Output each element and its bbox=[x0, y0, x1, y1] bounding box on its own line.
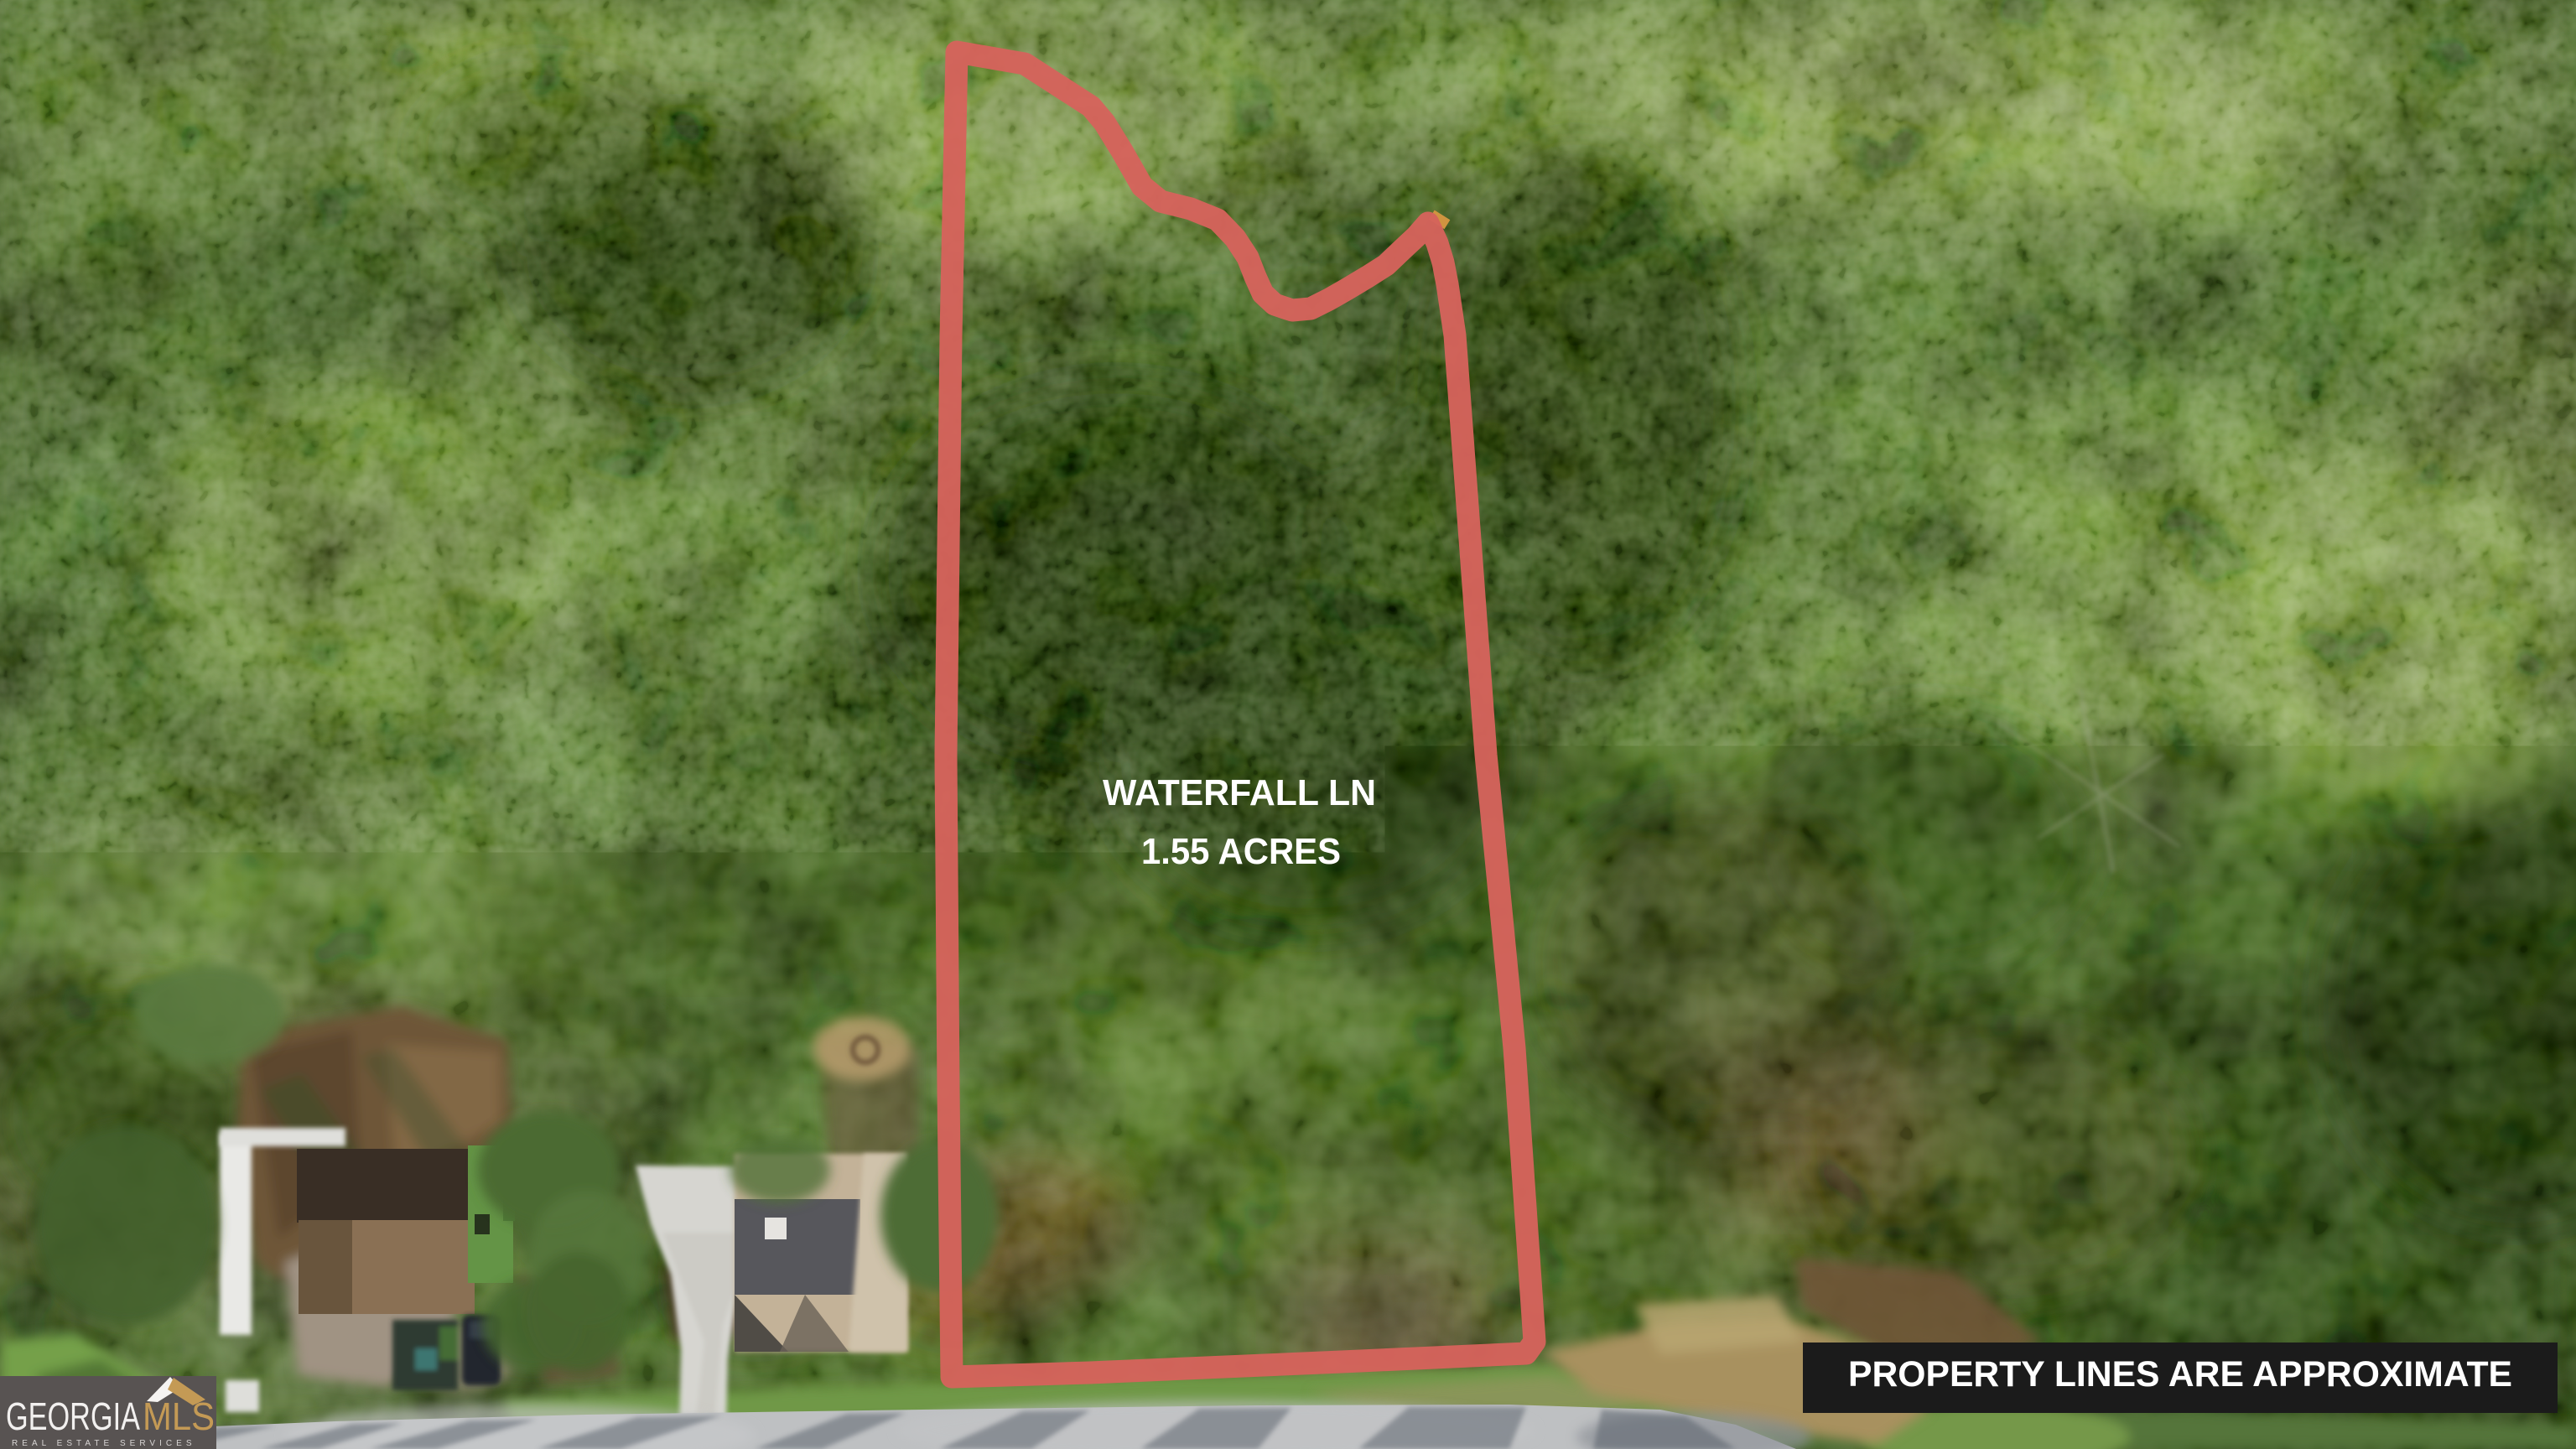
svg-text:WATERFALL LN: WATERFALL LN bbox=[1103, 772, 1376, 813]
svg-text:PROPERTY LINES ARE APPROXIMATE: PROPERTY LINES ARE APPROXIMATE bbox=[1848, 1354, 2512, 1394]
svg-text:1.55 ACRES: 1.55 ACRES bbox=[1141, 831, 1341, 872]
svg-text:REAL ESTATE SERVICES: REAL ESTATE SERVICES bbox=[12, 1439, 195, 1448]
svg-text:GEORGIA: GEORGIA bbox=[6, 1394, 140, 1438]
svg-text:MLS: MLS bbox=[143, 1394, 215, 1438]
